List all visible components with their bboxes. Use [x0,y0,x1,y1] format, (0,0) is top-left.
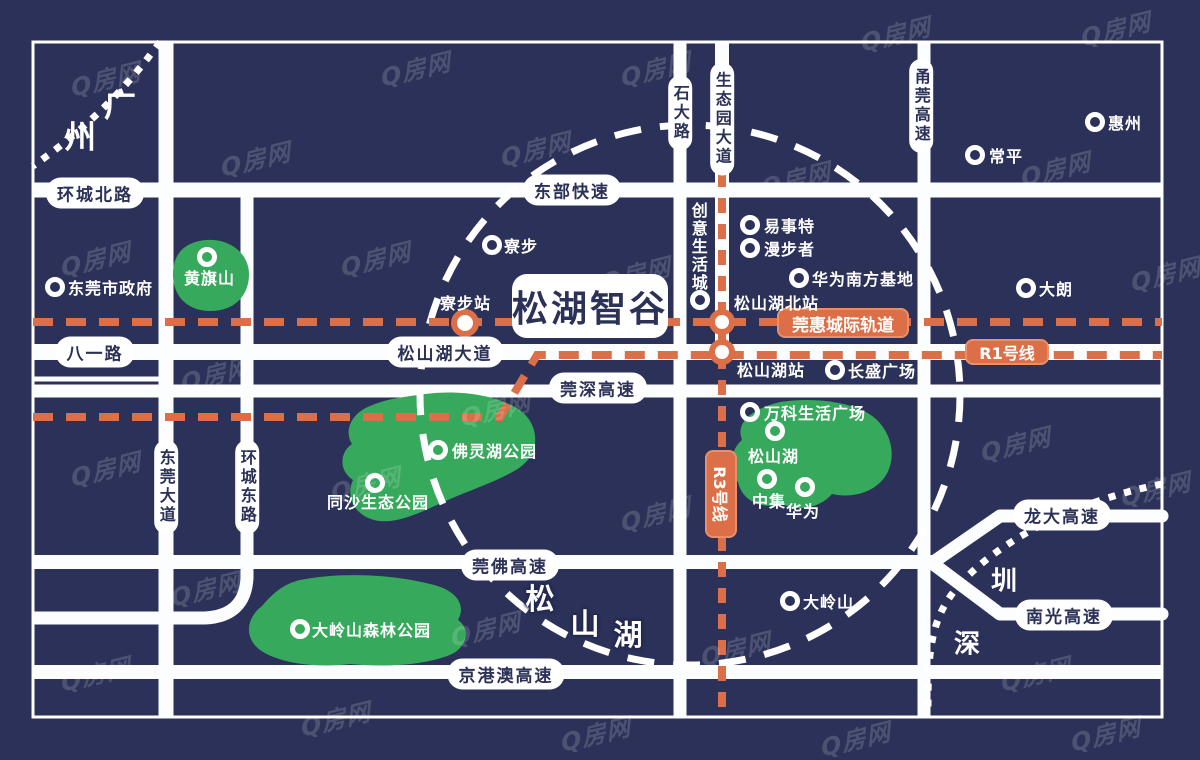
road-label-dongbu-express: 东部快速 [523,175,621,206]
road-label-dongguan-avenue: 东莞大道 [154,440,178,534]
label-shenzhen-char-2: 深 [954,624,980,661]
road-label-shida: 石大路 [668,76,692,151]
vanke-life-plaza-marker [743,405,758,420]
songshanhu-north-station-marker [712,312,732,332]
liaobu-station-marker [454,312,476,334]
label-vanke-life-plaza: 万科生活广场 [764,400,866,424]
road-label-longda: 龙大高速 [1013,500,1111,531]
huizhou-marker [1088,115,1103,130]
label-songshanhu-station: 松山湖站 [737,357,805,381]
guangzhou-rail-dotted-line [33,42,160,166]
label-huangqishan: 黄旗山 [184,265,235,289]
label-huizhou: 惠州 [1108,110,1142,134]
r3-line-badge: R3号线 [705,450,737,538]
label-changsheng-plaza: 长盛广场 [848,358,916,382]
changping-marker [968,148,983,163]
label-songshanhu-lake: 松山湖 [748,443,799,467]
road-label-huancheng-north: 环城北路 [46,178,144,209]
label-songshanhu-north-station: 松山湖北站 [734,290,819,314]
label-dalang: 大朗 [1039,276,1073,300]
songshanhu-station-marker [712,342,732,362]
label-changping: 常平 [989,143,1023,167]
label-huawei: 华为 [786,498,820,522]
road-label-yongguan: 甬莞高速 [909,59,933,153]
location-map: 环城北路 东部快速 八一路 松山湖大道 莞深高速 莞佛高速 京港澳高速 龙大高速… [0,0,1200,760]
dongguan-government-marker [48,280,63,295]
label-liaobu-town: 寮步 [504,233,538,257]
dalingshan-marker [783,594,798,609]
label-guangzhou-char-1: 广 [104,80,136,126]
road-label-jinggangao: 京港澳高速 [448,659,565,690]
huawei-south-base-marker [792,271,807,286]
road-label-guanshen: 莞深高速 [549,373,647,404]
road-label-bayi: 八一路 [56,337,135,368]
label-liaobu-station: 寮步站 [440,290,491,314]
label-yishite: 易事特 [764,213,815,237]
road-label-huancheng-east: 环城东路 [235,440,259,534]
road-label-songshanhu-avenue: 松山湖大道 [387,337,504,368]
label-dongguan-government: 东莞市政府 [68,275,153,299]
changsheng-plaza-marker [828,363,843,378]
road-label-shengtaiyuan: 生态园大道 [710,63,734,176]
label-dalingshan: 大岭山 [803,589,854,613]
project-logo-songhu-zhigu: 松湖智谷 [512,274,668,338]
dalang-marker [1019,281,1034,296]
label-guangzhou-char-2: 州 [64,112,96,158]
label-shenzhen-char-1: 圳 [991,561,1017,598]
label-chuangyi-life-city: 创意生活城 [689,202,707,292]
chuangyi-life-city-marker [693,293,708,308]
manbuzhe-marker [743,241,758,256]
yishite-marker [743,218,758,233]
label-songshanhu-area-char-3: 湖 [613,612,642,654]
label-tongsha-eco-park: 同沙生态公园 [327,489,429,513]
liaobu-town-marker [485,238,500,253]
label-folinhu-park: 佛灵湖公园 [452,438,537,462]
label-dalingshan-forest-park: 大岭山森林公园 [312,617,431,641]
label-songshanhu-area-char-1: 松 [525,576,554,618]
label-songshanhu-area-char-2: 山 [570,601,599,643]
r1-line-badge: R1号线 [965,339,1049,365]
label-huawei-south-base: 华为南方基地 [812,266,914,290]
road-label-nanguang: 南光高速 [1015,600,1113,631]
label-manbuzhe: 漫步者 [764,236,815,260]
label-zhongji: 中集 [752,488,786,512]
